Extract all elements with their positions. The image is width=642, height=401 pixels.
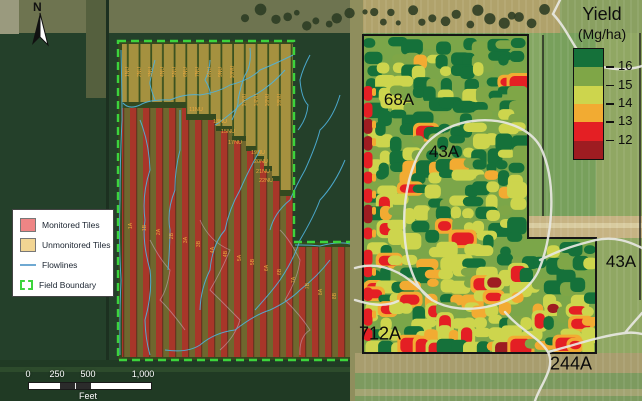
tile-label: 5NU (172, 67, 178, 77)
yield-class-swatch (574, 141, 603, 159)
field-label-244A: 244A (550, 354, 592, 375)
field-label-43A: 43A (606, 252, 636, 272)
tile-label: 15NU (221, 129, 235, 135)
tile-label: 9NU (218, 67, 224, 77)
yield-class-swatch (574, 86, 603, 104)
scalebar-tick-label: 1,000 (132, 369, 155, 379)
legend-item-label: Monitored Tiles (42, 220, 100, 230)
tile-label: 8A (318, 289, 324, 295)
yield-tick-label: 16 (618, 58, 632, 73)
yield-tick-mark (606, 121, 614, 123)
tile-label: 10NU (230, 66, 236, 79)
yield-class-swatch (574, 67, 603, 85)
tile-label: 3A (183, 237, 189, 243)
tile-label: 3B (196, 241, 202, 247)
field-label-712A: 712A (359, 324, 401, 345)
tile-label: 2NU (137, 67, 143, 77)
tile-label: 6B (277, 269, 283, 275)
tile-label: 16NU (265, 94, 271, 107)
yield-legend-subtitle: (Mg/ha) (562, 26, 642, 42)
tile-label: 6A (264, 265, 270, 271)
unmonitored-tiles-swatch (20, 238, 36, 252)
tile-label: 1NU (125, 67, 131, 77)
yield-class-swatch (574, 104, 603, 122)
tile-label: 7A (291, 277, 297, 283)
tile-label: 14NU (254, 94, 260, 107)
scalebar-bar (28, 382, 152, 390)
yield-class-swatch (574, 49, 603, 67)
scalebar-unit: Feet (79, 391, 97, 401)
tile-label: 7B (305, 283, 311, 289)
tile-label: 4NU (160, 67, 166, 77)
yield-tick-label: 12 (618, 132, 632, 147)
tile-label: 2A (156, 229, 162, 235)
scalebar-tick-label: 0 (25, 369, 30, 379)
yield-colorbar (573, 48, 604, 160)
tile-label: 4B (223, 251, 229, 257)
yield-tick-label: 15 (618, 77, 632, 92)
tile-label: 13NU (213, 119, 227, 125)
flowlines-swatch (20, 264, 36, 266)
tile-label: 22NU (259, 178, 273, 184)
map-graphic (0, 0, 642, 401)
legend-item-label: Field Boundary (39, 280, 96, 290)
tile-label: 2B (169, 233, 175, 239)
tile-label: 12NU (242, 94, 248, 107)
tile-label: 17NU (228, 140, 242, 146)
tile-label: 4A (210, 247, 216, 253)
tile-label: 1B (142, 225, 148, 231)
map-legend: Monitored TilesUnmonitored TilesFlowline… (12, 209, 114, 297)
yield-class-swatch (574, 122, 603, 140)
tile-label: 5B (250, 259, 256, 265)
tile-label: 19NU (251, 150, 265, 156)
legend-item-monitored-tiles: Monitored Tiles (20, 215, 113, 235)
legend-item-field-boundary: Field Boundary (20, 275, 113, 295)
tile-label: 3NU (148, 67, 154, 77)
yield-tick-mark (606, 140, 614, 142)
yield-tick-label: 13 (618, 113, 632, 128)
yield-legend-title: Yield (562, 4, 642, 25)
field-boundary-swatch (20, 280, 33, 290)
yield-tick-label: 14 (618, 95, 632, 110)
north-arrow-icon (28, 12, 52, 48)
tile-label: 1A (128, 223, 134, 229)
tile-label: 8NU (207, 67, 213, 77)
tile-label: 18NU (277, 94, 283, 107)
monitored-tiles-swatch (20, 218, 36, 232)
yield-tick-mark (606, 103, 614, 105)
legend-item-flowlines: Flowlines (20, 255, 113, 275)
field-label-68A: 68A (384, 90, 414, 110)
yield-tick-mark (606, 85, 614, 87)
tile-label: 5A (237, 255, 243, 261)
legend-item-label: Flowlines (42, 260, 77, 270)
yield-legend: Yield (Mg/ha) 1615141312 (562, 2, 642, 164)
tile-label: 20NU (254, 159, 268, 165)
tile-label: 7NU (195, 67, 201, 77)
tile-label: 8B (332, 293, 338, 299)
legend-item-unmonitored-tiles: Unmonitored Tiles (20, 235, 113, 255)
scalebar: 02505001,000 Feet (24, 369, 158, 401)
tile-label: 6NU (183, 67, 189, 77)
scalebar-tick-label: 250 (49, 369, 64, 379)
field-label-43A: 43A (429, 142, 459, 162)
yield-tick-mark (606, 66, 614, 68)
scalebar-tick-label: 500 (80, 369, 95, 379)
figure-canvas: N Monitored TilesUnmonitored TilesFlowli… (0, 0, 642, 401)
tile-label: 21NU (256, 169, 270, 175)
tile-label: 11NU (189, 107, 203, 113)
legend-item-label: Unmonitored Tiles (42, 240, 111, 250)
